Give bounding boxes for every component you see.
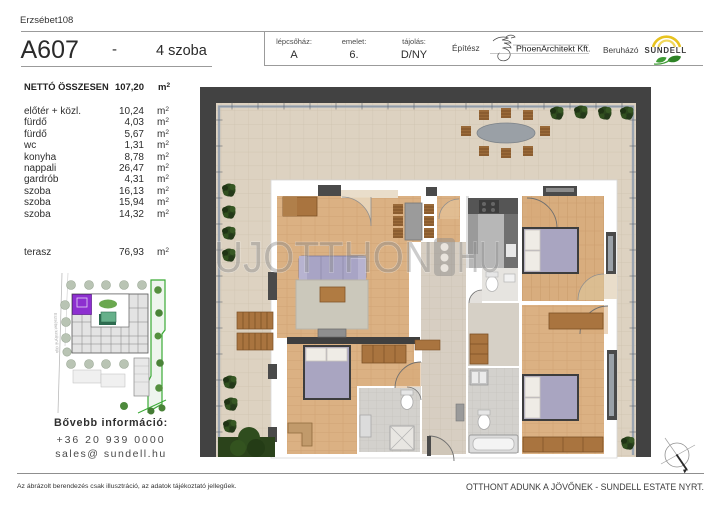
svg-text:UJOTTHON: UJOTTHON	[214, 233, 433, 282]
svg-text:HU: HU	[457, 233, 501, 282]
